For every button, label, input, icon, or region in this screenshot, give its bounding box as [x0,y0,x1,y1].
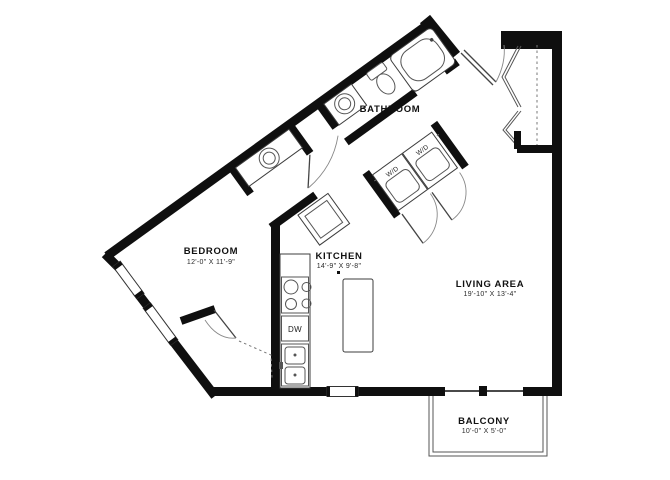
room-label-kitchen: KITCHEN [315,251,362,262]
room-label-bathroom: BATHROOM [360,104,421,115]
entry-door-leaf-2 [464,50,496,82]
room-dims-balcony: 10'-0" X 5'-0" [462,428,507,435]
entry-door-leaf [461,53,493,85]
balcony-slider-tick [479,386,487,396]
sink-drain-1 [294,354,297,357]
room-labels: BEDROOM 12'-0" X 11'-9" BATHROOM KITCHEN… [184,104,525,435]
sink-drain-2 [294,374,297,377]
room-dims-living: 19'-10" X 13'-4" [464,291,517,298]
kitchen-fixtures: DW [276,224,374,392]
closet-door-arc [205,320,236,338]
room-dims-bedroom: 12'-0" X 11'-9" [187,259,235,266]
floor-plan-page: W/D W/D DW [0,0,670,480]
wall-bottom-right [523,387,562,396]
wd-door-leaf-2 [432,192,452,220]
room-label-living: LIVING AREA [456,279,525,290]
sink-faucet [279,362,283,369]
kitchen-island [343,279,373,352]
dishwasher-label: DW [288,325,302,334]
bedroom-door-leaf [293,155,325,188]
entry-door-arc [496,45,504,82]
wall-right [552,31,562,396]
wall-ll-seg3 [169,336,215,396]
bedroom-window-1 [113,261,144,299]
wall-diagonal-main [107,23,430,256]
floor-plan: W/D W/D DW [0,0,670,480]
kitchen-counter [280,254,310,388]
windows [113,261,358,396]
wall-closet-bottom [517,145,562,153]
room-label-bedroom: BEDROOM [184,246,239,257]
bedroom-window-2 [143,303,178,345]
room-dims-kitchen: 14'-9" X 9'-8" [317,263,362,270]
wall-bedroom-stub [181,309,215,321]
entry [461,45,562,153]
room-label-balcony: BALCONY [458,416,510,427]
wd-door-leaf-1 [402,214,423,243]
kitchen-note-mark [337,271,340,274]
closet-dashed-outline [239,341,272,378]
living-window [327,387,358,397]
